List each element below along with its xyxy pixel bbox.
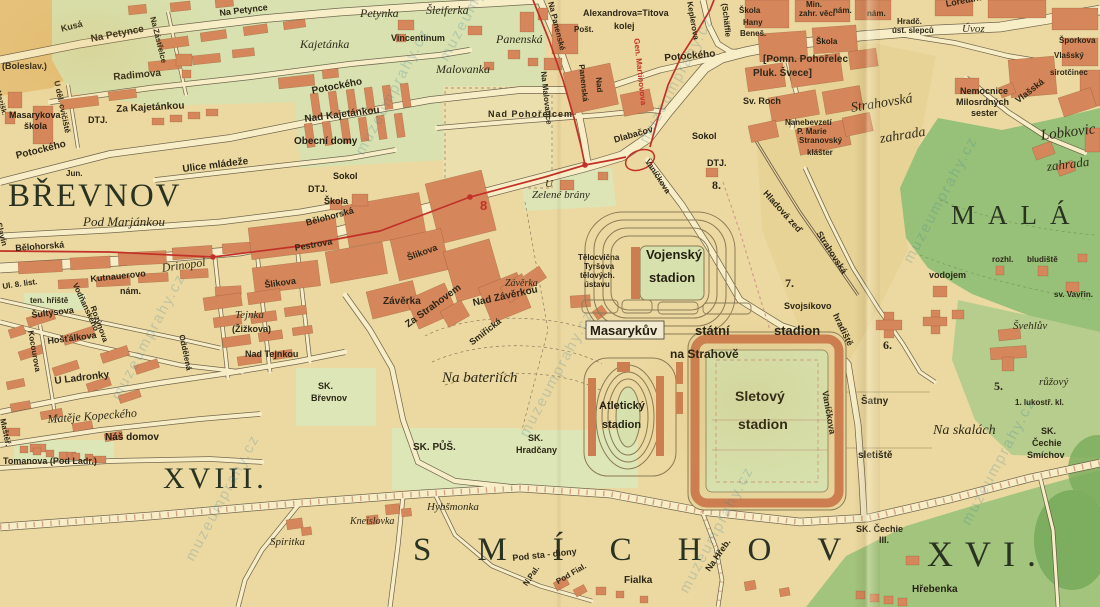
historical-map-scan: BŘEVNOVMALÁSMÍCHOVXVI.XVIII.PetynkaŠleif… xyxy=(0,0,1100,607)
sletovy-stadion xyxy=(688,332,846,510)
field-sk-brevnov xyxy=(296,368,376,426)
stadium-label-box xyxy=(586,321,664,339)
map-canvas xyxy=(0,0,1100,607)
